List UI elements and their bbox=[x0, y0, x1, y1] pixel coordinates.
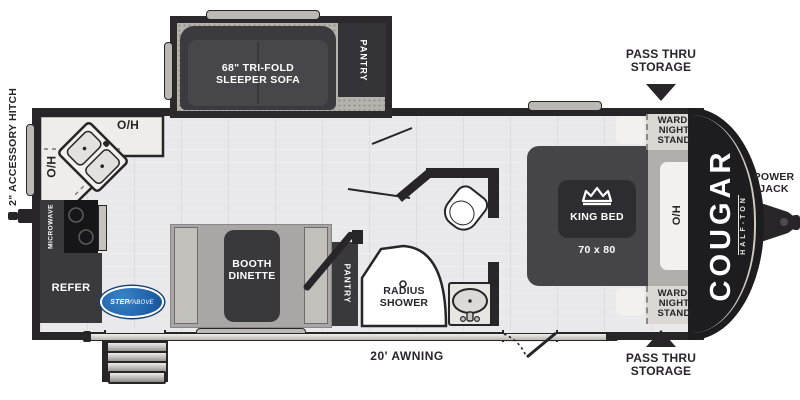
step-logo-text-a: STEP bbox=[110, 299, 129, 306]
refer-label: REFER bbox=[40, 282, 102, 295]
entry-step-4 bbox=[108, 371, 166, 384]
brand-sub-name: HALF-TON bbox=[738, 195, 748, 255]
wardrobe-top-label: WARD. NIGHT STAND bbox=[646, 116, 702, 146]
step-logo-text-b: ABOVE bbox=[132, 300, 154, 306]
nightstand-bottom bbox=[616, 288, 644, 316]
king-bed-label: KING BED bbox=[558, 211, 636, 223]
pass-thru-bottom-arrow-icon bbox=[646, 330, 676, 347]
pantry-bottom-label: PANTRY bbox=[339, 249, 352, 319]
cougar-brand-block: COUGAR HALF-TON bbox=[704, 125, 750, 325]
wardrobe-bottom-label: WARD. NIGHT STAND bbox=[646, 289, 702, 319]
awning-end-cap-left bbox=[83, 331, 91, 342]
microwave-label: MICROWAVE bbox=[48, 200, 57, 254]
sofa-label: 68" TRI-FOLD SLEEPER SOFA bbox=[186, 62, 330, 86]
rear-window bbox=[26, 124, 35, 196]
floorplan-canvas: 68" TRI-FOLD SLEEPER SOFA PANTRY O/H O/H… bbox=[0, 0, 800, 400]
slideout-handle-top bbox=[206, 10, 320, 20]
nightstand-top bbox=[616, 116, 644, 144]
accessory-hitch-label: 2" ACCESSORY HITCH bbox=[8, 67, 20, 227]
slideout-left-window bbox=[164, 42, 173, 100]
pass-thru-bottom-label: PASS THRU STORAGE bbox=[615, 352, 707, 379]
bath-door-jamb bbox=[352, 230, 363, 244]
brand-name: COUGAR bbox=[707, 149, 736, 302]
pass-thru-top-arrow-icon bbox=[646, 84, 676, 101]
stove-burners bbox=[62, 199, 102, 255]
top-wall-window bbox=[528, 101, 602, 111]
crown-icon bbox=[579, 186, 615, 206]
dinette-label: BOOTH DINETTE bbox=[218, 258, 286, 282]
bedroom-door-swing bbox=[490, 325, 610, 385]
kitchen-oh-top-label: O/H bbox=[108, 119, 148, 132]
bedroom-oh-label: O/H bbox=[671, 200, 683, 230]
bed-size-label: 70 x 80 bbox=[557, 244, 637, 256]
pass-thru-top-label: PASS THRU STORAGE bbox=[615, 48, 707, 75]
bath-wall-top bbox=[426, 168, 490, 178]
pantry-top-label: PANTRY bbox=[356, 26, 369, 96]
dinette-bench-left bbox=[174, 227, 198, 324]
shower-label: RADIUS SHOWER bbox=[363, 286, 445, 310]
step-above-logo: STEP∕∕ABOVE bbox=[100, 286, 164, 318]
awning-label: 20' AWNING bbox=[347, 350, 467, 363]
kitchen-oh-left-label: O/H bbox=[45, 152, 58, 182]
power-jack-label: POWER JACK bbox=[748, 172, 800, 196]
bath-sink bbox=[447, 281, 497, 331]
bath-wall-right-upper bbox=[488, 168, 499, 218]
